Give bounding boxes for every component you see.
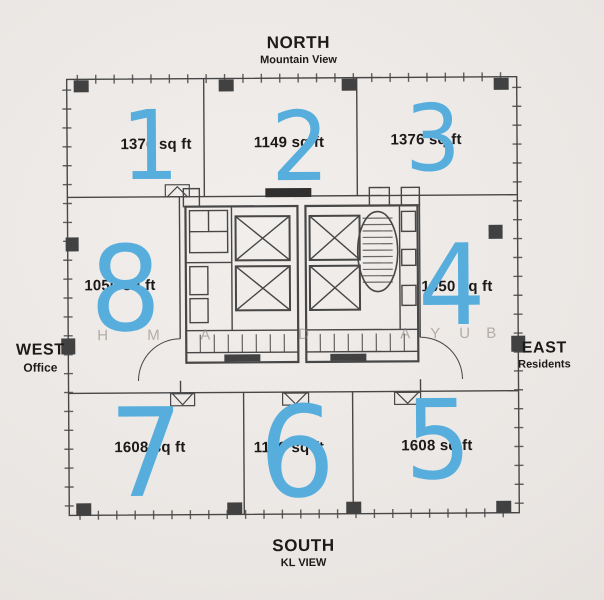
compass-north: NORTH Mountain View bbox=[198, 32, 398, 66]
compass-north-label: NORTH bbox=[198, 32, 398, 53]
unit-2-number: 2 bbox=[271, 99, 330, 195]
compass-east-sublabel: Residents bbox=[502, 358, 586, 371]
unit-5-number: 5 bbox=[405, 385, 472, 495]
unit-1-number: 1 bbox=[121, 98, 180, 194]
compass-west-label: WEST bbox=[0, 341, 80, 359]
compass-east: EAST Residents bbox=[502, 339, 586, 371]
compass-south-sublabel: KL VIEW bbox=[204, 556, 404, 569]
watermark-letter: A bbox=[200, 327, 211, 344]
compass-west-sublabel: Office bbox=[0, 360, 80, 374]
unit-8-number: 8 bbox=[90, 230, 162, 348]
watermark-letter: A bbox=[400, 325, 411, 342]
plan-rotation-wrapper: H M A D A Y U B 1376 sq ft 1149 sq ft 13… bbox=[0, 0, 604, 600]
compass-south: SOUTH KL VIEW bbox=[203, 535, 403, 569]
compass-west: WEST Office bbox=[0, 341, 80, 374]
unit-3-number: 3 bbox=[405, 93, 461, 185]
unit-4-number: 4 bbox=[418, 230, 486, 342]
compass-east-label: EAST bbox=[502, 339, 586, 358]
compass-south-label: SOUTH bbox=[203, 535, 403, 556]
unit-6-number: 6 bbox=[259, 390, 336, 516]
watermark-letter: B bbox=[486, 325, 497, 342]
floor-plan-photo: H M A D A Y U B 1376 sq ft 1149 sq ft 13… bbox=[0, 0, 604, 600]
unit-7-number: 7 bbox=[109, 393, 184, 516]
watermark-letter: D bbox=[298, 326, 310, 343]
compass-north-sublabel: Mountain View bbox=[198, 53, 398, 66]
